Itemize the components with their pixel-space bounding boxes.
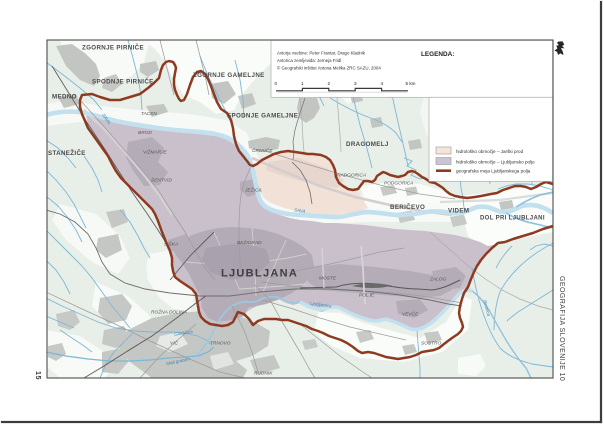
svg-text:4: 4 — [381, 81, 384, 86]
svg-text:RUDNIK: RUDNIK — [254, 371, 273, 377]
svg-text:SPODNJE GAMELJNE: SPODNJE GAMELJNE — [227, 113, 298, 120]
svg-text:MEDNO: MEDNO — [52, 94, 77, 101]
svg-text:ZALOG: ZALOG — [429, 277, 447, 283]
svg-text:LEGENDA:: LEGENDA: — [421, 51, 454, 58]
svg-text:VIDEM: VIDEM — [448, 208, 469, 215]
svg-text:3: 3 — [354, 81, 357, 86]
svg-text:hidrološko območje – Ljubljans: hidrološko območje – Ljubljansko polje — [456, 160, 535, 165]
svg-text:MOSTE: MOSTE — [319, 276, 337, 282]
svg-text:2: 2 — [328, 81, 331, 86]
svg-text:5 km: 5 km — [406, 81, 416, 86]
svg-text:TRNOVO: TRNOVO — [210, 341, 231, 347]
svg-text:1: 1 — [301, 81, 304, 86]
svg-text:ŠENTVID: ŠENTVID — [151, 177, 172, 184]
svg-text:geografska meja Ljubljanskega: geografska meja Ljubljanskega polja — [456, 169, 531, 174]
svg-text:PODGORICA: PODGORICA — [384, 181, 413, 187]
svg-text:SPODNJE PIRNIČE: SPODNJE PIRNIČE — [92, 79, 154, 86]
svg-text:VIČ: VIČ — [170, 340, 179, 347]
svg-text:STANEŽIČE: STANEŽIČE — [48, 149, 86, 157]
svg-text:TACEN: TACEN — [141, 111, 157, 117]
svg-text:ŠIŠKA: ŠIŠKA — [164, 241, 178, 248]
svg-text:0: 0 — [275, 81, 278, 86]
svg-text:ČRNUČE: ČRNUČE — [252, 147, 273, 154]
svg-text:BERIČEVO: BERIČEVO — [390, 204, 425, 211]
svg-text:NADGORICA: NADGORICA — [337, 173, 366, 179]
svg-text:BROD: BROD — [138, 130, 152, 136]
svg-text:hidrološko območje – Jarški pr: hidrološko območje – Jarški prod — [456, 149, 524, 154]
svg-text:POLJE: POLJE — [359, 293, 375, 299]
svg-text:DOL PRI LJUBLJANI: DOL PRI LJUBLJANI — [480, 216, 545, 222]
svg-text:LJUBLJANA: LJUBLJANA — [221, 268, 298, 280]
svg-text:DRAGOMELJ: DRAGOMELJ — [346, 141, 389, 148]
svg-text:ZGORNJE GAMELJNE: ZGORNJE GAMELJNE — [193, 72, 265, 79]
svg-text:© Geografski inštitut Antona M: © Geografski inštitut Antona Melika ZRC … — [277, 66, 381, 71]
svg-text:Avtorica zemljevida: Jerneja F: Avtorica zemljevida: Jerneja Fridl — [277, 58, 341, 63]
svg-text:VEVČE: VEVČE — [402, 311, 419, 318]
svg-text:Avtorja vsebine: Peter Frantar: Avtorja vsebine: Peter Frantar, Drago Kl… — [277, 51, 366, 56]
svg-text:SOSTRO: SOSTRO — [421, 341, 442, 347]
svg-text:ZGORNJE PIRNIČE: ZGORNJE PIRNIČE — [82, 45, 144, 52]
